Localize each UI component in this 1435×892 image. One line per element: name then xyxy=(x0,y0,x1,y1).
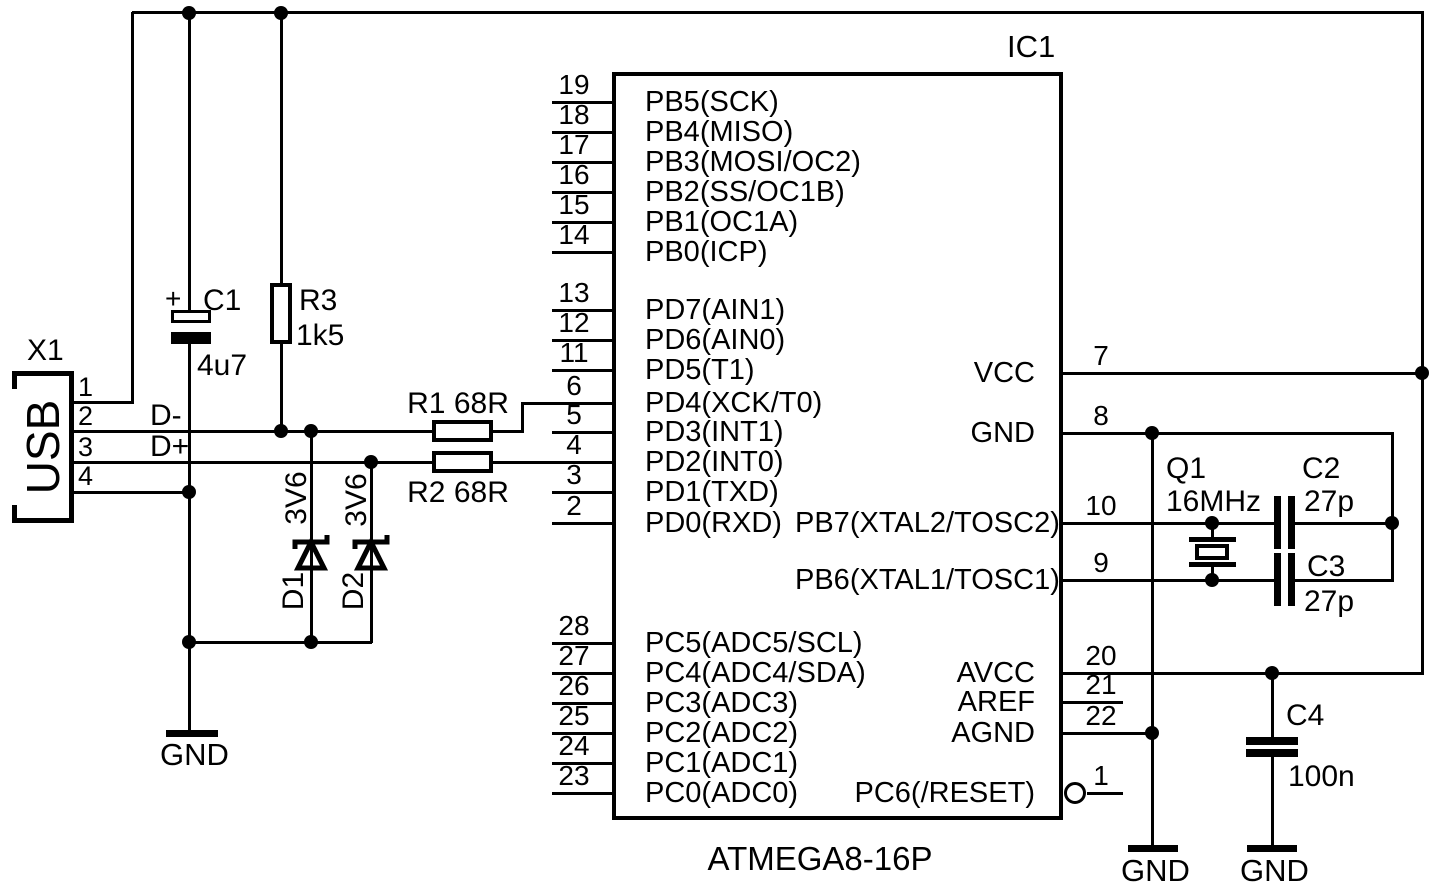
pin-number: 3 xyxy=(548,461,600,489)
crystal-q1-body xyxy=(1195,544,1229,560)
pin-number: 13 xyxy=(548,279,600,307)
capacitor-c1-value: 4u7 xyxy=(197,350,247,382)
pin-number: 22 xyxy=(1075,702,1127,730)
capacitor-c2-value: 27p xyxy=(1304,486,1354,518)
wire xyxy=(1271,755,1274,846)
pin-number: 4 xyxy=(548,431,600,459)
pin-label: PD5(T1) xyxy=(645,354,755,386)
pin-label: AVCC xyxy=(795,657,1035,689)
resistor-r1 xyxy=(432,420,493,442)
junction-dot xyxy=(1265,666,1279,680)
pin-label: PC0(ADC0) xyxy=(645,777,798,809)
pin-label: PB7(XTAL2/TOSC2) xyxy=(795,507,1035,539)
pin-number: 15 xyxy=(548,191,600,219)
pin-label: PD7(AIN1) xyxy=(645,294,785,326)
pin-label: PD1(TXD) xyxy=(645,476,779,508)
usb-pin-number: 1 xyxy=(78,373,93,401)
wire xyxy=(280,342,283,432)
junction-dot xyxy=(182,485,196,499)
pin-label: PC5(ADC5/SCL) xyxy=(645,627,863,659)
capacitor-c1-ref: C1 xyxy=(203,285,241,317)
junction-dot xyxy=(1145,426,1159,440)
usb-pin-number: 4 xyxy=(78,462,93,490)
pin-label: PB2(SS/OC1B) xyxy=(645,176,845,208)
wire xyxy=(188,343,191,733)
wire xyxy=(1087,792,1123,795)
wire xyxy=(74,461,432,464)
pin-number: 14 xyxy=(548,221,600,249)
junction-dot xyxy=(304,635,318,649)
wire xyxy=(280,12,283,284)
signal-label-d-plus: D+ xyxy=(150,431,189,463)
pin-label: PD3(INT1) xyxy=(645,416,784,448)
reset-inversion-bubble xyxy=(1064,782,1086,804)
wire xyxy=(189,641,372,644)
usb-pin-number: 3 xyxy=(78,433,93,461)
crystal-q1-plate-top xyxy=(1189,537,1236,542)
capacitor-c2-ref: C2 xyxy=(1302,453,1340,485)
wire xyxy=(492,430,524,433)
pin-number: 26 xyxy=(548,672,600,700)
wire xyxy=(1421,12,1424,674)
resistor-r1-label: R1 68R xyxy=(398,388,518,420)
pin-label: PB3(MOSI/OC2) xyxy=(645,146,861,178)
capacitor-c2-plate xyxy=(1274,496,1281,549)
pin-label: AREF xyxy=(795,686,1035,718)
wire xyxy=(1295,522,1394,525)
pin-label: PB1(OC1A) xyxy=(645,206,798,238)
signal-label-d-minus: D- xyxy=(150,400,182,432)
usb-connector-label: USB xyxy=(19,377,67,517)
junction-dot xyxy=(274,6,288,20)
pin-number: 28 xyxy=(548,612,600,640)
junction-dot xyxy=(274,424,288,438)
capacitor-c4-plate xyxy=(1246,737,1298,745)
zener-d1-ref: D1 xyxy=(278,556,308,626)
resistor-r3 xyxy=(270,283,292,344)
capacitor-c2-plate xyxy=(1288,496,1295,549)
wire xyxy=(1063,372,1424,375)
junction-dot xyxy=(182,6,196,20)
pin-label: PD0(RXD) xyxy=(645,507,782,539)
pin-number: 8 xyxy=(1075,402,1127,430)
pin-label: GND xyxy=(795,417,1035,449)
gnd-label: GND xyxy=(1121,855,1185,887)
capacitor-c4-ref: C4 xyxy=(1286,700,1324,732)
zener-d1-value: 3V6 xyxy=(281,463,311,533)
resistor-r2 xyxy=(432,451,493,473)
pin-number: 18 xyxy=(548,101,600,129)
crystal-q1-ref: Q1 xyxy=(1166,453,1206,485)
ic-part-number: ATMEGA8-16P xyxy=(670,843,970,875)
pin-number: 20 xyxy=(1075,642,1127,670)
resistor-r3-ref: R3 xyxy=(299,285,337,317)
pin-label: PC3(ADC3) xyxy=(645,687,798,719)
pin-number: 2 xyxy=(548,492,600,520)
wire xyxy=(74,491,191,494)
pin-number: 27 xyxy=(548,642,600,670)
gnd-label: GND xyxy=(1240,855,1304,887)
capacitor-c3-plate xyxy=(1288,553,1295,606)
pin-number: 17 xyxy=(548,131,600,159)
capacitor-c1-plate-bottom xyxy=(171,332,211,344)
gnd-symbol xyxy=(1128,845,1178,852)
zener-d2-value: 3V6 xyxy=(341,465,371,535)
wire xyxy=(74,430,432,433)
pin-number: 23 xyxy=(548,762,600,790)
pin-label: PB0(ICP) xyxy=(645,236,767,268)
pin-number: 25 xyxy=(548,702,600,730)
capacitor-c4-plate xyxy=(1246,749,1298,757)
pin-label: AGND xyxy=(795,717,1035,749)
pin-label: PB4(MISO) xyxy=(645,116,793,148)
pin-number: 24 xyxy=(548,732,600,760)
capacitor-c1-polarity: + xyxy=(165,283,181,315)
usb-connector-hook xyxy=(12,505,17,523)
pin-label: PC1(ADC1) xyxy=(645,747,798,779)
pin-label: PC6(/RESET) xyxy=(795,777,1035,809)
pin-label: PD6(AIN0) xyxy=(645,324,785,356)
capacitor-c3-ref: C3 xyxy=(1307,551,1345,583)
wire xyxy=(552,792,612,795)
usb-ref: X1 xyxy=(27,335,64,367)
pin-number: 10 xyxy=(1075,492,1127,520)
pin-number: 6 xyxy=(548,372,600,400)
junction-dot xyxy=(1385,516,1399,530)
usb-pin-number: 2 xyxy=(78,402,93,430)
pin-number: 11 xyxy=(548,339,600,367)
gnd-symbol xyxy=(1247,845,1297,852)
pin-number: 7 xyxy=(1075,342,1127,370)
gnd-symbol xyxy=(166,730,218,737)
pin-label: PC2(ADC2) xyxy=(645,717,798,749)
resistor-r2-label: R2 68R xyxy=(398,477,518,509)
junction-dot xyxy=(1415,366,1429,380)
pin-label: PB5(SCK) xyxy=(645,86,779,118)
usb-connector-hook xyxy=(12,371,17,389)
pin-label: PD4(XCK/T0) xyxy=(645,387,822,419)
capacitor-c3-value: 27p xyxy=(1304,586,1354,618)
pin-number: 16 xyxy=(548,161,600,189)
wire xyxy=(1063,522,1276,525)
pin-number: 21 xyxy=(1075,671,1127,699)
pin-number: 19 xyxy=(548,71,600,99)
capacitor-c4-value: 100n xyxy=(1288,761,1355,793)
wire xyxy=(1151,433,1154,846)
pin-number: 9 xyxy=(1075,549,1127,577)
pin-number: 12 xyxy=(548,309,600,337)
wire xyxy=(188,12,191,311)
pin-label: VCC xyxy=(795,357,1035,389)
pin-label: PB6(XTAL1/TOSC1) xyxy=(795,564,1035,596)
junction-dot xyxy=(1205,516,1219,530)
schematic-canvas: USB X1 1 2 3 4 D- D+ + C1 4u7 R3 1k5 R1 … xyxy=(0,0,1435,892)
junction-dot xyxy=(1205,573,1219,587)
junction-dot xyxy=(1145,726,1159,740)
junction-dot xyxy=(182,635,196,649)
wire xyxy=(132,11,1424,14)
junction-dot xyxy=(304,424,318,438)
resistor-r3-value: 1k5 xyxy=(296,320,344,352)
wire xyxy=(521,402,524,432)
wire xyxy=(1063,432,1394,435)
capacitor-c3-plate xyxy=(1274,553,1281,606)
gnd-label: GND xyxy=(160,739,224,771)
wire xyxy=(1063,579,1276,582)
zener-d2-ref: D2 xyxy=(338,556,368,626)
crystal-q1-value: 16MHz xyxy=(1166,486,1261,518)
wire xyxy=(1271,673,1274,738)
wire xyxy=(1063,732,1153,735)
ic-ref: IC1 xyxy=(1007,31,1055,63)
wire xyxy=(552,251,612,254)
crystal-q1-plate-bottom xyxy=(1189,562,1236,567)
wire xyxy=(1391,433,1394,581)
pin-number: 5 xyxy=(548,401,600,429)
pin-label: PD2(INT0) xyxy=(645,446,784,478)
wire xyxy=(131,12,134,402)
wire xyxy=(552,522,612,525)
